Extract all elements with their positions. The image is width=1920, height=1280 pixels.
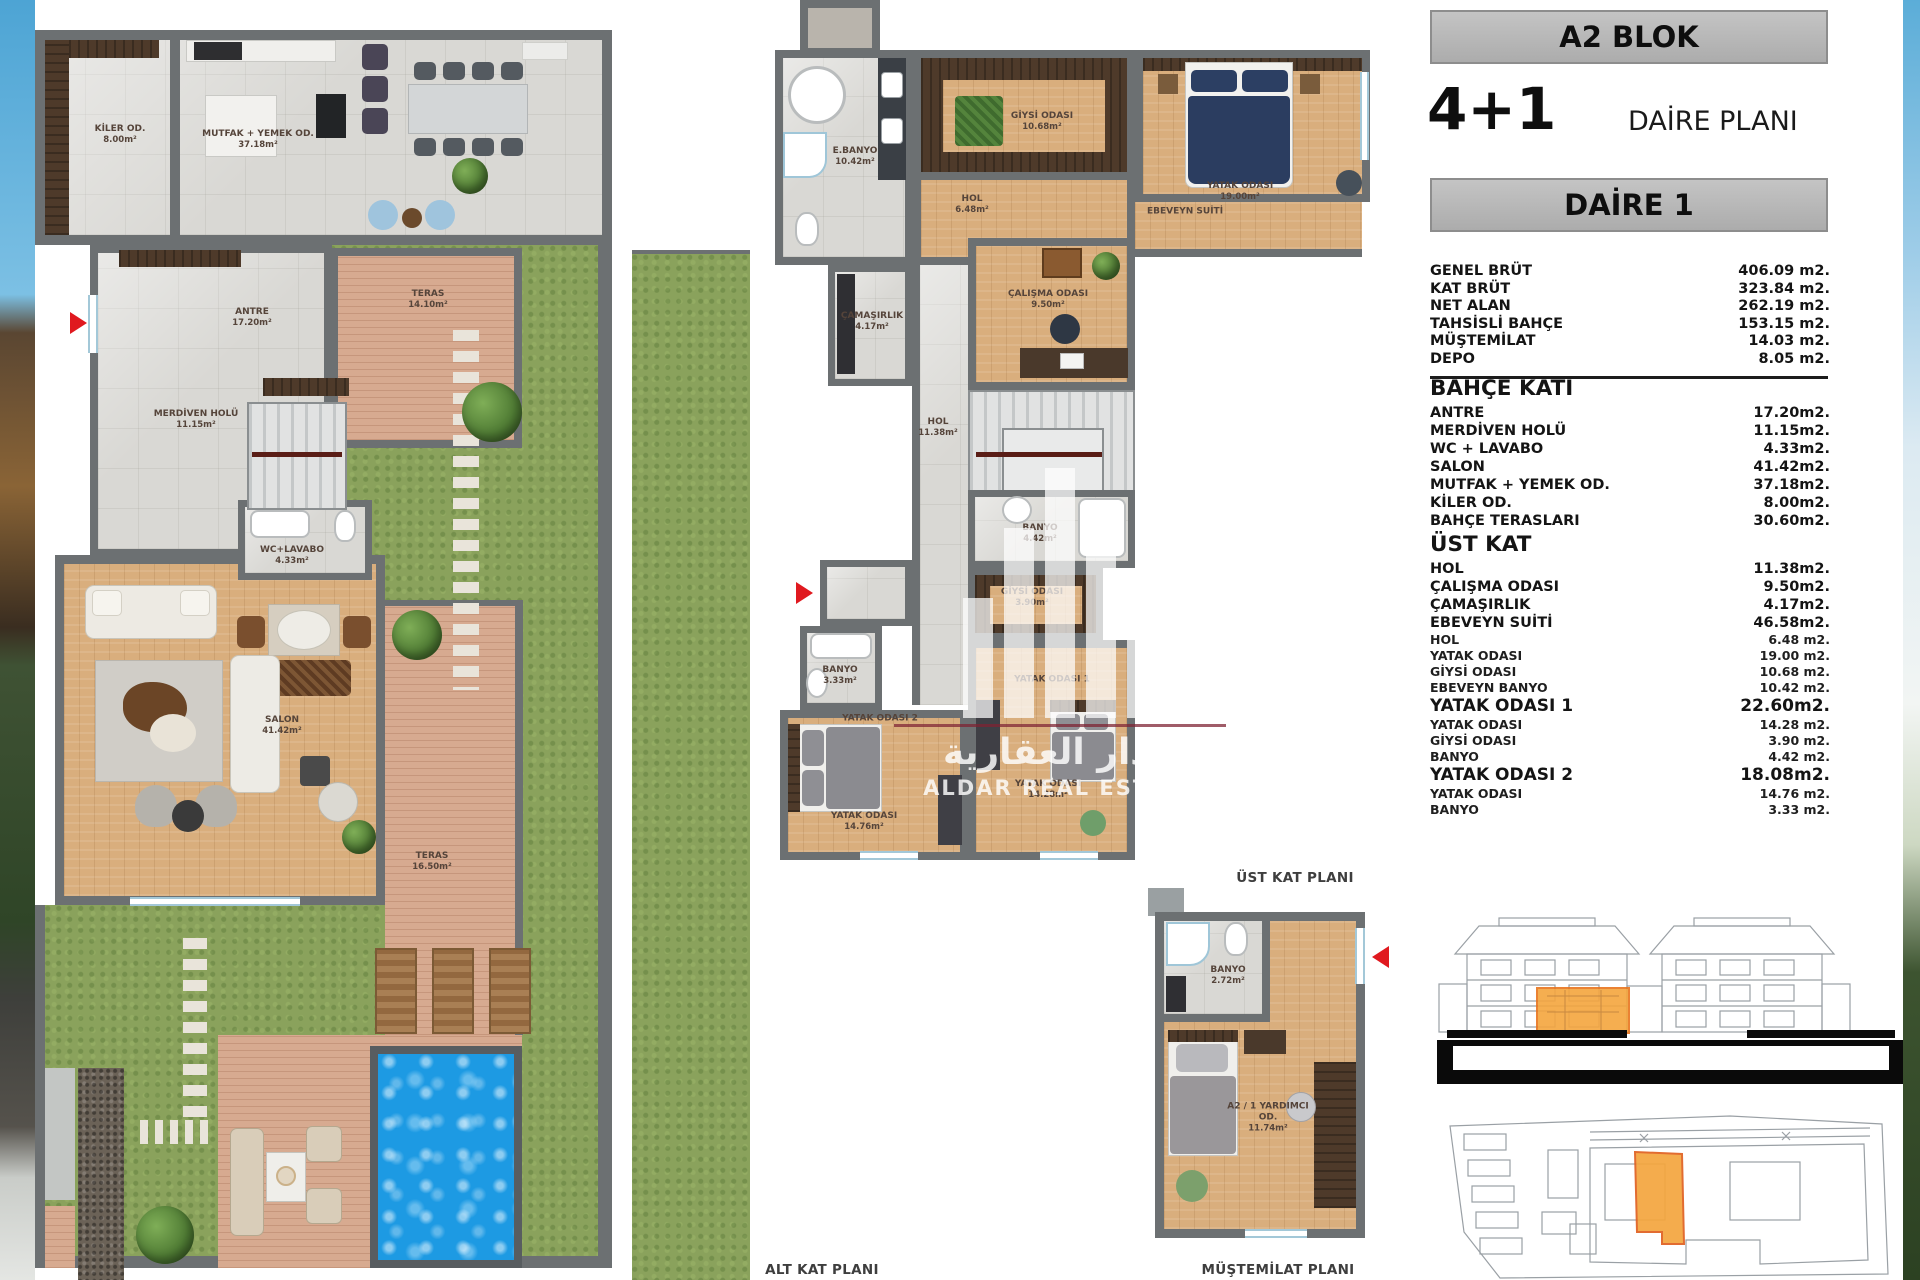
bathtub	[810, 633, 872, 659]
duvet	[826, 727, 880, 809]
coffee-table-2	[150, 714, 196, 752]
area-row: EBEVEYN SUİTİ46.58m2.	[1430, 614, 1830, 632]
area-row: YATAK ODASI 122.60m2.	[1430, 696, 1830, 717]
dining-chair	[501, 138, 523, 156]
area-row: KAT BRÜT323.84 m2.	[1430, 281, 1830, 299]
area-row: BAHÇE TERASLARI30.60m2.	[1430, 512, 1830, 530]
area-row: YATAK ODASI14.76 m2.	[1430, 786, 1830, 802]
room-label-calisma: ÇALIŞMA ODASI9.50m²	[1008, 289, 1088, 311]
site-highlight	[1635, 1152, 1684, 1244]
sideboard	[522, 42, 568, 60]
stair-rail	[252, 452, 342, 457]
room-label-hol2: HOL11.38m²	[918, 417, 957, 439]
room-label-camasirlik: ÇAMAŞIRLIK4.17m²	[841, 311, 903, 333]
pillow	[802, 730, 824, 766]
room-label-ebanyo: E.BANYO10.42m²	[833, 146, 878, 168]
pantry-shelves	[45, 40, 69, 235]
area-row: ÇALIŞMA ODASI9.50m2.	[1430, 578, 1830, 596]
sofa-cushion	[180, 590, 210, 616]
outdoor-sofa	[230, 1128, 264, 1236]
sofa-cushion	[92, 590, 122, 616]
pillow	[802, 770, 824, 806]
stepping-stones	[453, 330, 479, 690]
plant	[1092, 252, 1120, 280]
background-photo-left	[0, 0, 35, 1280]
washbasin	[1002, 496, 1032, 524]
sun-lounger	[375, 948, 417, 1034]
unit-type: 4+1	[1427, 80, 1556, 138]
side-garden-strip	[632, 250, 750, 1280]
room-label-yatak2-hdr: YATAK ODASI 2	[842, 714, 918, 725]
area-row: MÜŞTEMİLAT14.03 m2.	[1430, 333, 1830, 351]
stepping-stones	[183, 938, 207, 1120]
cooktop	[194, 42, 242, 60]
room-label-yatak-ebeveyn: YATAK ODASI19.00m²	[1207, 181, 1273, 203]
round-table	[172, 800, 204, 832]
area-row: EBEVEYN BANYO10.42 m2.	[1430, 680, 1830, 696]
area-row: SALON41.42m2.	[1430, 458, 1830, 476]
room-label-yatak2: YATAK ODASI14.76m²	[831, 811, 897, 833]
area-row: GENEL BRÜT406.09 m2.	[1430, 263, 1830, 281]
elevation-drawing	[1437, 912, 1907, 1117]
dining-table	[408, 84, 528, 134]
dresser	[976, 700, 1000, 770]
beanbag	[1336, 170, 1362, 196]
sun-lounger	[489, 948, 531, 1034]
concrete-pad	[45, 1068, 75, 1200]
bar-stool	[362, 44, 388, 70]
area-row: DEPO8.05 m2.	[1430, 351, 1830, 369]
room-label-banyo2: BANYO3.33m²	[822, 665, 857, 687]
pillow	[1056, 714, 1080, 730]
tree	[392, 610, 442, 660]
stair-rail	[976, 452, 1102, 457]
tree	[462, 382, 522, 442]
beanbag	[1176, 1170, 1208, 1202]
room-label-teras2: TERAS16.50m²	[412, 851, 451, 873]
pillow	[1191, 70, 1237, 92]
caption-ust-kat: ÜST KAT PLANI	[1236, 870, 1354, 886]
bedroom-window	[1360, 72, 1369, 160]
headboard	[1050, 700, 1116, 712]
plant	[342, 820, 376, 854]
room-label-banyo1: BANYO4.42m²	[1022, 523, 1057, 545]
entry-door	[88, 295, 98, 353]
lounge-chair	[425, 200, 455, 230]
closet	[1314, 1062, 1356, 1208]
area-row: ÇAMAŞIRLIK4.17m2.	[1430, 596, 1830, 614]
entry-arrow-upper	[796, 582, 813, 604]
area-row: HOL6.48 m2.	[1430, 632, 1830, 648]
outdoor-table-ring	[276, 1166, 296, 1186]
oval-table	[277, 610, 331, 650]
round-chair	[318, 782, 358, 822]
bathtub	[250, 510, 310, 538]
area-row: YATAK ODASI 218.08m2.	[1430, 765, 1830, 786]
pillow	[1242, 70, 1288, 92]
area-row: MUTFAK + YEMEK OD.37.18m2.	[1430, 476, 1830, 494]
floorplan-sheet: KİLER OD.8.00m² MUTFAK + YEMEK OD.37.18m…	[0, 0, 1920, 1280]
chest	[1042, 248, 1082, 278]
ottoman	[300, 756, 330, 786]
pool	[370, 1046, 522, 1268]
dining-chair	[501, 62, 523, 80]
balcony	[800, 0, 880, 56]
window	[860, 851, 918, 860]
area-row: ANTRE17.20m2.	[1430, 404, 1830, 422]
armchair	[237, 616, 265, 648]
lounge-chair	[368, 200, 398, 230]
area-row: GİYSİ ODASI10.68 m2.	[1430, 664, 1830, 680]
duvet	[1052, 732, 1114, 780]
nightstand	[1300, 74, 1320, 94]
room-label-wc: WC+LAVABO4.33m²	[260, 545, 324, 567]
fabric-chair	[135, 785, 177, 827]
entry-arrow-mustemilat	[1372, 946, 1389, 968]
shower	[1166, 922, 1210, 966]
area-row: NET ALAN262.19 m2.	[1430, 298, 1830, 316]
washbasin	[881, 72, 903, 98]
bar-stool	[362, 108, 388, 134]
office-chair	[1050, 314, 1080, 344]
room-label-merdiven: MERDİVEN HOLÜ11.15m²	[154, 409, 239, 431]
outdoor-chair	[306, 1188, 342, 1224]
beanbag	[1080, 810, 1106, 836]
toilet	[795, 212, 819, 246]
window	[1245, 1229, 1307, 1238]
shelf	[1244, 1030, 1286, 1054]
room-label-kiler: KİLER OD.8.00m²	[95, 124, 146, 146]
plan-type: DAİRE PLANI	[1628, 108, 1798, 135]
pillow	[1084, 714, 1108, 730]
room-label-yatak1-hdr: YATAK ODASI 1	[1014, 675, 1090, 686]
pillow	[1176, 1044, 1228, 1072]
outdoor-chair	[306, 1126, 342, 1162]
area-row: TAHSİSLİ BAHÇE153.15 m2.	[1430, 316, 1830, 334]
area-summary-list: GENEL BRÜT406.09 m2. KAT BRÜT323.84 m2. …	[1430, 263, 1830, 368]
plant	[452, 158, 488, 194]
dining-chair	[414, 138, 436, 156]
nightstand	[1158, 74, 1178, 94]
room-label-salon: SALON41.42m²	[262, 715, 301, 737]
unit-title-bar: DAİRE 1	[1430, 178, 1828, 232]
bathtub	[1078, 498, 1126, 558]
doormat	[119, 250, 241, 267]
dining-chair	[414, 62, 436, 80]
caption-alt-kat: ALT KAT PLANI	[765, 1262, 879, 1278]
background-photo-right	[1903, 0, 1920, 1280]
room-label-ebeveyn-suiti: EBEVEYN SUİTİ	[1147, 207, 1223, 218]
door	[1355, 928, 1365, 984]
caption-mustemilat: MÜŞTEMİLAT PLANI	[1202, 1262, 1355, 1278]
room-label-teras1: TERAS14.10m²	[408, 289, 447, 311]
area-row: BANYO4.42 m2.	[1430, 749, 1830, 765]
dining-chair	[472, 138, 494, 156]
wood-pad	[45, 1206, 75, 1268]
toilet	[334, 510, 356, 542]
area-row: YATAK ODASI19.00 m2.	[1430, 648, 1830, 664]
washbasin	[881, 118, 903, 144]
area-row: WC + LAVABO4.33m2.	[1430, 440, 1830, 458]
pantry-shelf-top	[69, 40, 159, 58]
site-plan	[1430, 1112, 1910, 1280]
bar-stool	[362, 76, 388, 102]
duvet	[1188, 96, 1290, 184]
elevation-highlight	[1537, 988, 1629, 1033]
area-row: KİLER OD.8.00m2.	[1430, 494, 1830, 512]
oven-column	[316, 94, 346, 138]
dining-chair	[472, 62, 494, 80]
dining-chair	[443, 62, 465, 80]
room-hol-corridor	[912, 265, 968, 705]
room-label-mus-banyo: BANYO2.72m²	[1210, 965, 1245, 987]
toilet	[1224, 922, 1248, 956]
gravel-pad	[78, 1068, 124, 1280]
green-rug	[955, 96, 1003, 146]
area-row: GİYSİ ODASI3.90 m2.	[1430, 733, 1830, 749]
area-detail-list: BAHÇE KATI ANTRE17.20m2. MERDİVEN HOLÜ11…	[1430, 374, 1830, 818]
room-label-giysi2: GİYSİ ODASI3.90m²	[1001, 587, 1063, 609]
room-vestibule	[820, 560, 912, 626]
dining-chair	[443, 138, 465, 156]
headboard	[788, 724, 800, 812]
shower	[783, 132, 827, 178]
room-label-yatak1: YATAK ODASI14.28m²	[1015, 779, 1081, 801]
room-label-antre: ANTRE17.20m²	[232, 307, 271, 329]
room-label-giysi1: GİYSİ ODASI10.68m²	[1011, 111, 1073, 133]
area-row: HOL11.38m2.	[1430, 560, 1830, 578]
round-bathtub	[788, 66, 846, 124]
side-table	[402, 208, 422, 228]
window	[1040, 851, 1098, 860]
bath-cabinet	[1166, 976, 1186, 1012]
room-label-mutfak: MUTFAK + YEMEK OD.37.18m²	[202, 129, 314, 151]
room-label-yardimci: A2 / 1 YARDIMCI OD.11.74m²	[1225, 1102, 1311, 1135]
area-row: YATAK ODASI14.28 m2.	[1430, 717, 1830, 733]
armchair	[343, 616, 371, 648]
entry-arrow	[70, 312, 87, 334]
laptop	[1060, 353, 1084, 369]
area-row: BANYO3.33 m2.	[1430, 802, 1830, 818]
salon-window	[130, 897, 300, 906]
stepping-stones	[140, 1120, 208, 1144]
room-label-hol1: HOL6.48m²	[955, 194, 989, 216]
doormat	[263, 378, 349, 396]
sun-lounger	[432, 948, 474, 1034]
block-title-bar: A2 BLOK	[1430, 10, 1828, 64]
headboard	[1168, 1030, 1238, 1042]
dresser	[938, 775, 962, 845]
area-row: MERDİVEN HOLÜ11.15m2.	[1430, 422, 1830, 440]
area-row: BAHÇE KATI	[1430, 374, 1830, 404]
area-row: ÜST KAT	[1430, 530, 1830, 560]
bush	[136, 1206, 194, 1264]
